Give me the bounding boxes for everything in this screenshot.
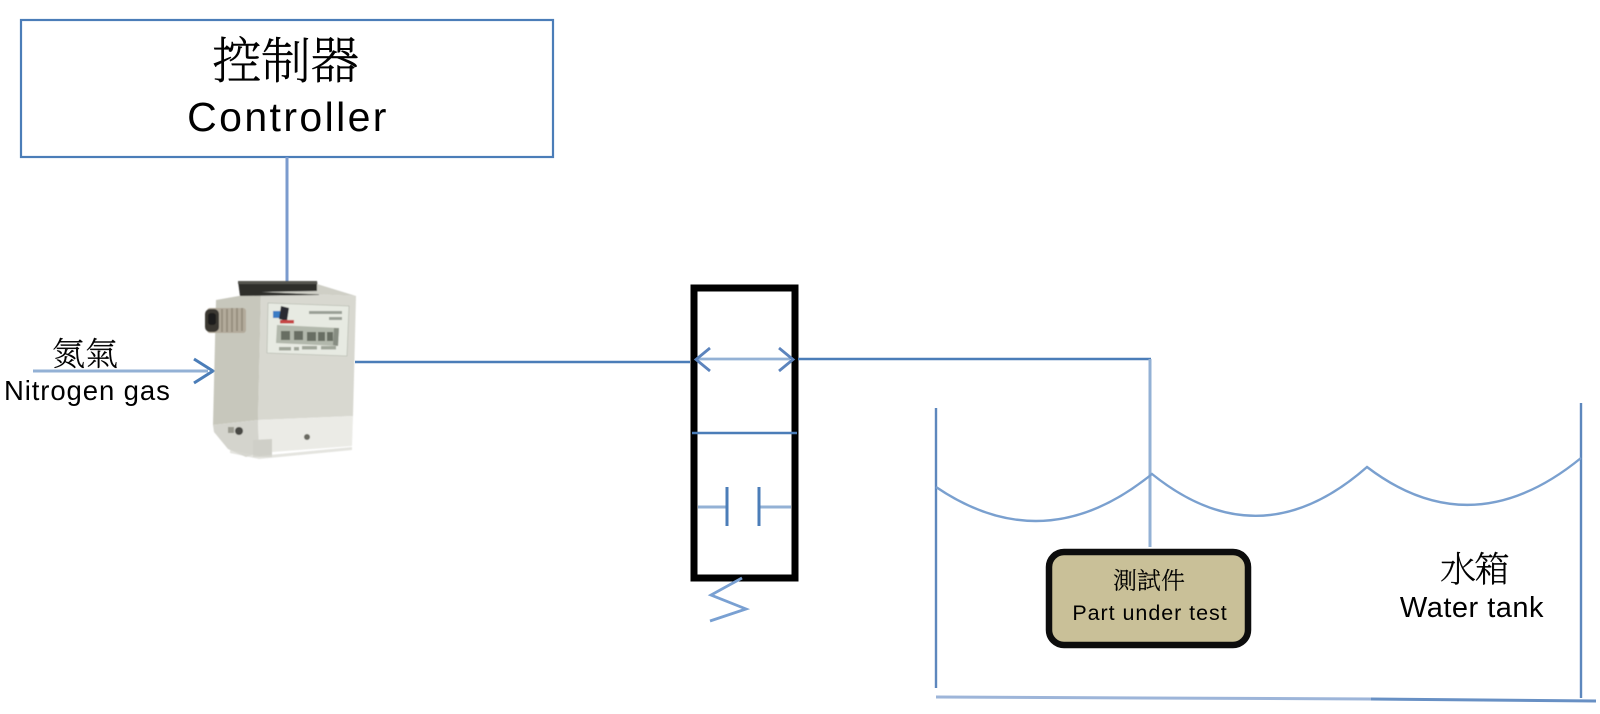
svg-text:Controller: Controller (187, 94, 389, 140)
svg-text:Part under test: Part under test (1072, 601, 1227, 625)
svg-text:Water tank: Water tank (1400, 592, 1544, 624)
svg-text:Nitrogen gas: Nitrogen gas (4, 375, 171, 406)
